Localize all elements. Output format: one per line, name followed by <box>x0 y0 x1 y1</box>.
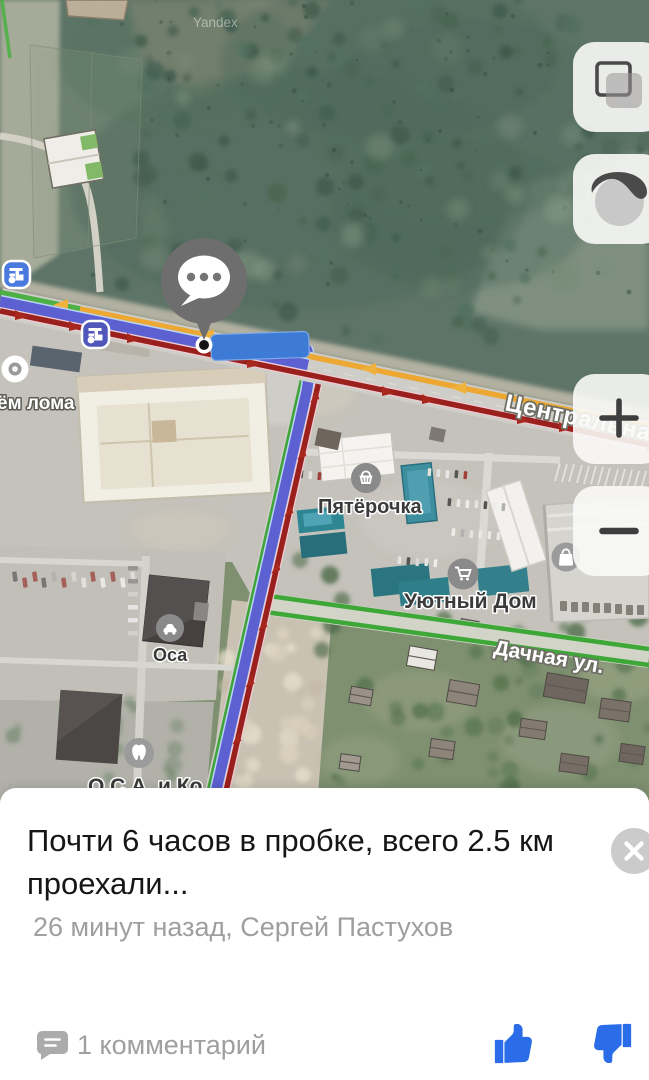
svg-text:Оса: Оса <box>153 645 188 665</box>
svg-text:Уютный Дом: Уютный Дом <box>404 590 537 613</box>
svg-text:ём лома: ём лома <box>0 393 75 414</box>
svg-text:Yandex: Yandex <box>193 15 238 30</box>
svg-text:Пятёрочка: Пятёрочка <box>318 496 423 518</box>
